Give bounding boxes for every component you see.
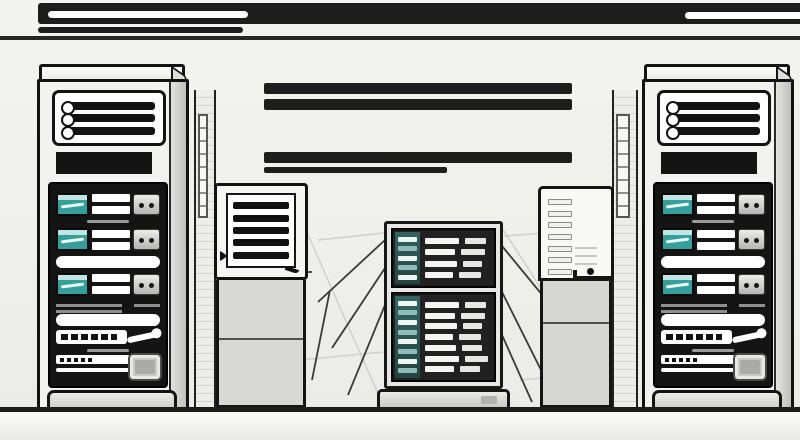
- indicator-cell: [398, 368, 417, 373]
- cable-line: [502, 292, 542, 372]
- vent-slat: [233, 239, 289, 246]
- rack-unit-row: [425, 249, 490, 255]
- floor-line: [0, 407, 800, 412]
- rack-unit-bar: [465, 356, 489, 362]
- connector-module: [738, 194, 765, 215]
- rack-unit-row: [425, 238, 490, 244]
- tray-stripes: [697, 194, 735, 214]
- tray-stripe: [697, 206, 735, 214]
- connector-module: [738, 274, 765, 295]
- vent-slat: [548, 246, 572, 252]
- tower-drive-panel: [653, 182, 773, 388]
- rack-unit-bar: [459, 272, 481, 278]
- scaffold-column-left: [194, 90, 216, 408]
- rack-unit-bar: [459, 334, 481, 340]
- rack-panel-top: [391, 228, 496, 288]
- cabinet-body: [216, 280, 306, 408]
- rack-unit-bar: [465, 302, 486, 308]
- rack-unit-bar: [463, 323, 482, 329]
- lcd-display: [56, 193, 89, 216]
- connector-module: [133, 274, 160, 295]
- blank-bay-bar: [661, 256, 765, 268]
- drive-tray: [661, 191, 765, 217]
- blank-bay-bar: [56, 256, 160, 268]
- rack-unit-bar: [425, 249, 455, 255]
- rack-unit-row: [425, 323, 490, 329]
- vent-slat: [548, 222, 572, 228]
- rack-unit-bar: [461, 313, 485, 319]
- server-room-illustration: [0, 0, 800, 440]
- decor-bar: [264, 99, 572, 110]
- cabinet-vent-grille: [226, 193, 296, 268]
- rack-unit-bar: [463, 261, 482, 267]
- drive-tray: [661, 227, 765, 253]
- cable-line: [348, 305, 385, 395]
- blank-bay-bar: [56, 314, 160, 326]
- indicator-cell: [398, 256, 417, 261]
- tower-body: [642, 79, 794, 410]
- rack-unit-rows: [425, 233, 490, 283]
- square-power-button: [130, 355, 160, 379]
- vent-slat: [233, 202, 289, 209]
- dip-switch-bar: [661, 330, 732, 344]
- rack-unit-bar: [462, 345, 482, 351]
- vent-slat: [233, 215, 289, 222]
- tray-stripes: [92, 194, 130, 214]
- vent-slat: [63, 114, 155, 122]
- cable-line: [318, 240, 385, 302]
- tower-vent-panel: [657, 90, 771, 146]
- drive-tray: [56, 191, 160, 217]
- tray-stripe: [697, 194, 735, 202]
- vent-slat: [548, 269, 572, 275]
- cabinet-vent-box: [214, 183, 308, 280]
- lcd-display: [661, 193, 694, 216]
- rack-unit-bar: [425, 238, 459, 244]
- vent-dash: [661, 304, 727, 307]
- drive-tray: [661, 271, 765, 297]
- tray-stripe: [697, 274, 735, 282]
- connector-module: [738, 229, 765, 250]
- vent-slat: [668, 102, 760, 110]
- tray-stripe: [92, 194, 130, 202]
- cable-line: [312, 290, 330, 380]
- divider-dash: [87, 220, 129, 223]
- connector-module: [133, 194, 160, 215]
- indicator-cell: [398, 349, 417, 354]
- rack-unit-bar: [425, 356, 459, 362]
- io-row: [56, 355, 160, 379]
- tower-black-band: [661, 152, 757, 174]
- indicator-cell: [398, 246, 417, 251]
- vent-dash: [134, 304, 160, 307]
- rack-unit-row: [425, 366, 490, 372]
- vent-slat: [668, 127, 760, 135]
- rack-unit-row: [425, 261, 490, 267]
- scaffold-rungs: [198, 114, 208, 218]
- cable-hook: [126, 331, 160, 344]
- square-power-button: [735, 355, 765, 379]
- rack-unit-bar: [425, 345, 456, 351]
- cabinet-top-box: [538, 186, 614, 281]
- decor-bar-short: [264, 167, 447, 173]
- divider-dash: [87, 349, 129, 352]
- rack-unit-bar: [425, 334, 453, 340]
- lcd-display: [661, 273, 694, 296]
- rack-unit-bar: [425, 313, 455, 319]
- rack-unit-row: [425, 334, 490, 340]
- rack-unit-rows: [425, 297, 490, 377]
- indicator-cell: [398, 330, 417, 335]
- drive-tray: [56, 227, 160, 253]
- indicator-cell: [398, 301, 417, 306]
- rack-unit-bar: [465, 238, 486, 244]
- cable-hook: [731, 331, 765, 344]
- tray-stripe: [92, 230, 130, 238]
- tray-stripe: [92, 274, 130, 282]
- vent-slat: [668, 114, 760, 122]
- rack-unit-bar: [425, 261, 457, 267]
- rack-panel-bottom: [391, 292, 496, 382]
- top-banner-bar: [38, 3, 800, 24]
- io-ports-bar: [661, 355, 735, 364]
- tray-stripe: [92, 242, 130, 250]
- banner-sub-bar: [38, 27, 243, 33]
- indicator-cell: [398, 275, 417, 280]
- right-cabinet: [538, 186, 614, 408]
- tower-drive-panel: [48, 182, 168, 388]
- blank-bay-bar: [661, 314, 765, 326]
- drive-tray: [56, 271, 160, 297]
- right-server-tower: [642, 64, 798, 410]
- rack-unit-bar: [425, 366, 454, 372]
- tray-stripes: [92, 230, 130, 250]
- scaffold-column-right: [612, 90, 638, 408]
- vent-slat: [233, 227, 289, 234]
- cabinet-body: [540, 281, 612, 408]
- indicator-cell: [398, 339, 417, 344]
- divider-dash: [692, 220, 734, 223]
- connector-module: [133, 229, 160, 250]
- vent-slat: [233, 252, 289, 259]
- vent-slat: [63, 127, 155, 135]
- divider-dash: [692, 349, 734, 352]
- lcd-display: [661, 228, 694, 251]
- tray-stripes: [697, 274, 735, 294]
- vent-slat: [548, 234, 572, 240]
- vent-slat: [63, 102, 155, 110]
- rack-unit-row: [425, 345, 490, 351]
- rack-unit-bar: [425, 302, 459, 308]
- vent-dash-row: [661, 301, 765, 311]
- indicator-cell: [398, 310, 417, 315]
- vent-slat: [548, 211, 572, 217]
- cabinet-slat-column: [548, 199, 572, 275]
- decor-bar: [264, 83, 572, 94]
- rack-unit-bar: [425, 323, 457, 329]
- indicator-cell: [398, 359, 417, 364]
- io-ports-bar: [56, 355, 130, 364]
- lcd-display: [56, 273, 89, 296]
- rack-unit-bar: [461, 249, 485, 255]
- power-button-dot: [587, 268, 594, 275]
- tower-body: [37, 79, 189, 410]
- tower-black-band: [56, 152, 152, 174]
- rack-indicator-column: [395, 232, 420, 284]
- tray-stripes: [697, 230, 735, 250]
- banner-highlight-stripe: [685, 12, 800, 19]
- indicator-cell: [398, 237, 417, 242]
- left-server-tower: [37, 64, 193, 410]
- tray-stripe: [697, 230, 735, 238]
- rack-unit-bar: [460, 366, 480, 372]
- banner-highlight-stripe: [48, 11, 248, 18]
- center-server-rack: [384, 221, 503, 410]
- decor-bar: [264, 152, 572, 163]
- rack-unit-row: [425, 302, 490, 308]
- io-row: [661, 355, 765, 379]
- rack-unit-row: [425, 272, 490, 278]
- rack-unit-row: [425, 356, 490, 362]
- vent-dash-row: [56, 301, 160, 311]
- vent-dash: [739, 304, 765, 307]
- tray-stripe: [697, 242, 735, 250]
- lcd-display: [56, 228, 89, 251]
- tray-stripe: [92, 206, 130, 214]
- tower-front-face: [651, 82, 775, 407]
- tower-vent-panel: [52, 90, 166, 146]
- rack-unit-bar: [425, 272, 453, 278]
- tray-stripe: [697, 286, 735, 294]
- dip-switch-row: [661, 329, 765, 345]
- rack-frame: [384, 221, 503, 389]
- indicator-cell: [398, 265, 417, 270]
- tray-stripe: [92, 286, 130, 294]
- rack-unit-row: [425, 313, 490, 319]
- vent-dash: [56, 304, 122, 307]
- ceiling-rule-line: [0, 36, 800, 40]
- dip-switch-bar: [56, 330, 127, 344]
- vent-slat: [548, 199, 572, 205]
- rack-indicator-column: [395, 296, 420, 378]
- scaffold-rungs: [616, 114, 630, 218]
- cabinet-vent-dashes: [575, 241, 597, 267]
- left-cabinet: [214, 183, 308, 408]
- dip-switch-row: [56, 329, 160, 345]
- vent-slat: [548, 257, 572, 263]
- indicator-cell: [398, 320, 417, 325]
- tower-front-face: [46, 82, 170, 407]
- tray-stripes: [92, 274, 130, 294]
